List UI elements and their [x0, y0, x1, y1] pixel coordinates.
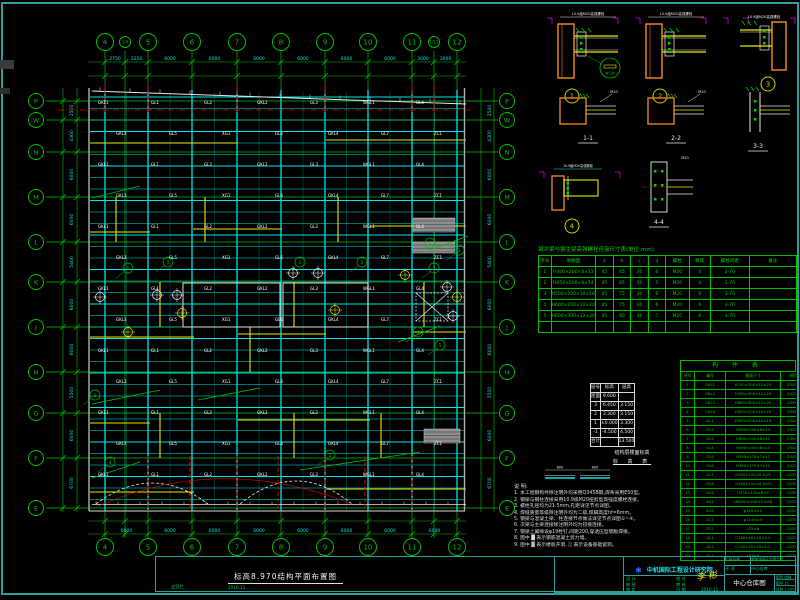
- weld-note: 坡口焊: [605, 70, 614, 75]
- member-table-cell: GKL2: [695, 390, 726, 399]
- signature-grid-cell: 校 对: [676, 576, 686, 581]
- detail-callout-number: 3: [458, 248, 461, 254]
- grid-bubble-label: 10: [364, 39, 373, 47]
- dimension-text: 6000: [209, 56, 221, 62]
- beam-label: WGL1: [363, 472, 375, 477]
- bolt-table-cell: c: [631, 256, 649, 267]
- beam-label: GL2: [204, 472, 212, 477]
- beam-label: GL5: [169, 379, 177, 384]
- bolt-table-cell: 3: [539, 289, 552, 300]
- beam-label: GL5: [169, 255, 177, 260]
- bolt-table-cell: 螺栓间距: [711, 256, 750, 267]
- grid-bubble-label: 5: [146, 39, 150, 47]
- grid-bubble-label: 6: [190, 39, 195, 47]
- beam-label: GKL4: [328, 193, 339, 198]
- grid-bubble-label: 1/4: [122, 40, 129, 45]
- member-table-cell: 10: [681, 462, 695, 471]
- detail-annotation: M20: [698, 90, 705, 94]
- green-diagonal: [300, 452, 420, 470]
- grid-bubble-label: G: [504, 409, 509, 417]
- detail-callout-number: 1: [439, 343, 442, 349]
- bolt: [654, 170, 657, 173]
- beam-label: GKL2: [257, 410, 268, 415]
- bolt: [580, 36, 583, 39]
- dimension-text: 6000: [487, 299, 493, 311]
- grid-bubble-label: 11: [408, 39, 417, 47]
- grid-bubble-label: N: [505, 148, 510, 156]
- bolt: [754, 100, 757, 103]
- dimension-text: 4300: [487, 130, 493, 142]
- member-table-cell: HN200×100×5.5×8: [726, 498, 781, 507]
- bolt: [668, 42, 671, 45]
- elevation-table-cell: -4.500: [601, 429, 619, 438]
- member-table-cell: 5: [681, 417, 695, 426]
- member-table-cell: Q345B: [781, 399, 797, 408]
- beam-label: GL3: [310, 162, 318, 167]
- member-table-cell: 8: [681, 444, 695, 453]
- elevation-table-cell: 3.300: [601, 411, 619, 420]
- beam-label: GKL1: [98, 286, 109, 291]
- grid-bubble-label: 7: [235, 39, 239, 47]
- elevation-table-cell: 13.500: [618, 438, 635, 447]
- detail-number: 3: [766, 81, 770, 89]
- callout-leader: [422, 272, 430, 278]
- bolt: [580, 42, 583, 45]
- grid-bubble-label: N: [34, 148, 39, 156]
- member-table-cell: Q345B: [781, 390, 797, 399]
- bolt: [668, 36, 671, 39]
- bolt-table-cell: 3-70: [711, 311, 750, 322]
- dimension-text: 3000: [440, 56, 452, 62]
- detail-callout-number: 5: [127, 266, 130, 272]
- member-table-cell: φ140×4.0: [726, 507, 781, 516]
- weld-tick: [748, 21, 751, 25]
- dimension-text: 5400: [487, 256, 493, 268]
- weld-tick: [756, 87, 759, 91]
- elevation-table-cell: 1: [591, 420, 601, 429]
- beam-label: GKL2: [257, 224, 268, 229]
- dimension-text: 6000: [69, 214, 75, 226]
- dimension-text: 6000: [341, 528, 353, 534]
- bolt-table-cell: [749, 289, 796, 300]
- dimension-text: 6000: [209, 528, 221, 534]
- detail-callout-number: 1: [429, 241, 432, 247]
- bolt-table-cell: 2-70: [711, 267, 750, 278]
- member-table-cell: XG2: [695, 507, 726, 516]
- beam-label: GL1: [151, 224, 159, 229]
- elevation-table-cell: ±0.000: [601, 420, 619, 429]
- bolt-table-cell: [711, 322, 750, 333]
- weld-tick: [742, 21, 745, 25]
- bolt-table-cell: [648, 322, 665, 333]
- detail-annotation: M20: [681, 156, 688, 160]
- beam-label: GL2: [204, 100, 212, 105]
- bolt-table-cell: [749, 278, 796, 289]
- subitem-value-cell: 中心仓库: [750, 566, 797, 575]
- member-table-cell: GKL1: [695, 381, 726, 390]
- beam-label: WGL1: [363, 348, 375, 353]
- notes-sketch-dim-text: 600: [557, 466, 564, 470]
- weld-plate: [604, 65, 616, 68]
- grid-bubble-label: J: [505, 323, 508, 331]
- dimension-text: 6000: [297, 528, 309, 534]
- beam-label: ZC1: [434, 193, 443, 198]
- beam-label: GKL3: [116, 441, 127, 446]
- column-detail: [558, 24, 574, 78]
- bolt-table: 钢次梁与钢主梁高强螺栓连接尺寸表(单位:mm) 序号梁截面abcd螺栓数量螺栓间…: [538, 245, 797, 333]
- signature-strip-date: 2010.11: [228, 585, 245, 590]
- dimension-text: 6700: [487, 477, 493, 489]
- member-table-cell: Q235B: [781, 534, 797, 543]
- drawing-meta-cells: 图别 结施图号 15比例 1:100: [774, 575, 797, 593]
- beam-label: GKL2: [257, 162, 268, 167]
- member-table-cell: XG1: [695, 498, 726, 507]
- beam-label: ZC1: [434, 317, 443, 322]
- member-table-cell: Q235B: [781, 516, 797, 525]
- subitem-name: 中心仓库: [751, 566, 797, 571]
- bolt-table-cell: [749, 300, 796, 311]
- beam-label: GKL3: [116, 379, 127, 384]
- grid-bubble-label: K: [34, 278, 39, 286]
- member-table-cell: QL1: [695, 534, 726, 543]
- bolt: [567, 182, 570, 185]
- grid-bubble-label: 11: [408, 544, 417, 552]
- dimension-text: 6000: [487, 169, 493, 181]
- signature-grid-cell: 审 核: [676, 582, 686, 587]
- dimension-text: 6700: [69, 477, 75, 489]
- section-column: [560, 98, 586, 124]
- beam-label: GKL3: [116, 255, 127, 260]
- bolt-table-cell: H600×200×10×20: [551, 300, 595, 311]
- grid-bubble-label: 12: [453, 544, 462, 552]
- beam-label: GL2: [204, 348, 212, 353]
- beam-label: GL4: [416, 162, 424, 167]
- column-detail: [772, 22, 786, 70]
- beam-label: GL5: [169, 131, 177, 136]
- beam-label: GKL1: [98, 472, 109, 477]
- drawing-title: 中心仓库图: [725, 575, 774, 592]
- bolt-table-cell: 45: [596, 278, 614, 289]
- bolt-table-cell: M20: [666, 300, 689, 311]
- member-table-cell: H250×125×6×9: [726, 489, 781, 498]
- bolt-table-cell: M20: [666, 289, 689, 300]
- bolt-table-cell: 6: [689, 311, 711, 322]
- beam-label: GL7: [381, 317, 389, 322]
- beam-label: GKL1: [98, 162, 109, 167]
- beam-label: WGL1: [363, 224, 375, 229]
- beam-label: GKL1: [98, 100, 109, 105]
- bolt-table-cell: 7: [648, 311, 665, 322]
- grid-bubble-label: 7: [235, 544, 239, 552]
- member-table-cell: C160×60×20×2.5: [726, 534, 781, 543]
- bolt-table-cell: 序号: [539, 256, 552, 267]
- title-block-blank-cell: [554, 557, 623, 593]
- member-table-cell: H700×300×12×22: [726, 381, 781, 390]
- bolt: [668, 48, 671, 51]
- dimension-text: 6000: [69, 169, 75, 181]
- member-table-cell: GL2: [695, 426, 726, 435]
- company-logo-icon: ✱: [635, 567, 642, 575]
- elevation-table-cell: 2: [591, 411, 601, 420]
- elevation-table-cell: 3.150: [618, 411, 635, 420]
- beam-label: WGL1: [363, 100, 375, 105]
- beam-label: GL6: [275, 255, 283, 260]
- member-table-cell: 截面尺寸: [726, 372, 781, 381]
- signature-grid-cell: 设 计: [626, 576, 636, 581]
- dimension-text: 5500: [487, 387, 493, 399]
- bolt-table-cell: 45: [596, 267, 614, 278]
- arch-brace: [240, 481, 352, 504]
- bolt: [754, 118, 757, 121]
- beam-label: GL5: [169, 317, 177, 322]
- green-diagonal: [198, 388, 260, 400]
- elevation-table-cell: 3.300: [618, 420, 635, 429]
- weld-tick: [676, 28, 679, 32]
- grid-bubble-label: 5: [146, 544, 150, 552]
- elevation-table-cell: 层高: [618, 384, 635, 393]
- elevation-table-cell: [601, 438, 619, 447]
- bolt: [661, 184, 664, 187]
- grid-bubble-label: 9: [323, 544, 327, 552]
- bolt-table-cell: 30: [631, 300, 649, 311]
- detail-callout-number: 1: [299, 260, 302, 266]
- elevation-table-caption: 结构层楼面标高: [590, 449, 674, 456]
- beam-label: ZC1: [434, 441, 443, 446]
- grid-bubble-label: H: [505, 368, 510, 376]
- member-table-cell: H500×200×10×16: [726, 417, 781, 426]
- beam-label: GL3: [310, 348, 318, 353]
- detail-callout-number: 1: [167, 260, 170, 266]
- member-table-cell: 3: [681, 399, 695, 408]
- bolt: [763, 42, 766, 45]
- member-table-cell: GL4: [695, 444, 726, 453]
- bolt-table-cell: 数量: [689, 256, 711, 267]
- bolt-table-cell: 螺栓: [666, 256, 689, 267]
- member-table-cell: GL1: [695, 417, 726, 426]
- grid-bubble-label: L: [34, 238, 38, 246]
- member-table-cell: 2: [681, 390, 695, 399]
- beam-label: GKL2: [257, 286, 268, 291]
- dimension-text: 6000: [487, 344, 493, 356]
- dimension-text: 6000: [297, 56, 309, 62]
- project-value-cell: 某物流园区仓储工程: [750, 557, 797, 566]
- elevation-table-cell: 标高: [601, 384, 619, 393]
- elevation-table-cell: 3.150: [618, 402, 635, 411]
- member-table-cell: GL3: [695, 435, 726, 444]
- elevation-table-cell: 6.450: [601, 402, 619, 411]
- beam-label: GL3: [310, 410, 318, 415]
- beam-label: XG1: [222, 317, 231, 322]
- bolt-table-cell: 45: [613, 267, 631, 278]
- detail-callout-number: 2: [433, 266, 436, 272]
- stair-hatch: [413, 242, 455, 253]
- beam-label: GKL1: [98, 348, 109, 353]
- bolt: [567, 187, 570, 190]
- bolt-table-cell: 6: [648, 300, 665, 311]
- bolt-table-cell: 75: [613, 289, 631, 300]
- weld-tick: [670, 28, 673, 32]
- weld-tick: [664, 28, 667, 32]
- beam-label: GL1: [151, 410, 159, 415]
- bolt-table-cell: H600×300×12×20: [551, 311, 595, 322]
- weld-leader: [588, 56, 602, 64]
- beam-label: GKL3: [116, 131, 127, 136]
- member-table-cell: GL8: [695, 480, 726, 489]
- detail-callout-number: 4: [417, 330, 420, 336]
- detail-annotation: 10.9级M20高强螺栓: [660, 11, 693, 16]
- dimension-text: 6000: [69, 344, 75, 356]
- member-table-cell: GL5: [695, 453, 726, 462]
- detail-number: 4: [570, 223, 575, 231]
- callout-leader: [116, 272, 124, 278]
- beam-label: GL3: [310, 472, 318, 477]
- grid-bubble-label: W: [33, 116, 40, 124]
- beam-label: GL2: [204, 410, 212, 415]
- title-block: 会签栏 2010.11 ✱ 中机国际工程设计研究院 设 计校 对制 图审 核审 …: [155, 556, 796, 592]
- dimension-text: 3000: [417, 56, 429, 62]
- cad-application-window[interactable]: 441/45566778899101011111/111212PPWWNNMML…: [0, 0, 800, 600]
- beam-label: GL3: [310, 100, 318, 105]
- beam-label: XG1: [222, 379, 231, 384]
- dimension-text: 6000: [341, 56, 353, 62]
- member-table-cell: H600×200×10×20: [726, 408, 781, 417]
- beam-label: GL4: [416, 224, 424, 229]
- grid-bubble-label: 8: [279, 39, 283, 47]
- member-table-cell: H300×150×6.5×9: [726, 471, 781, 480]
- member-table-cell: Q235B: [781, 525, 797, 534]
- dimension-text: 2500: [487, 105, 493, 117]
- elevation-table-cell: 屋面: [591, 393, 601, 402]
- detail-number: 1: [570, 93, 574, 101]
- member-table-cell: 1: [681, 381, 695, 390]
- dimension-text: 6000: [69, 299, 75, 311]
- member-table-cell: GKL3: [695, 399, 726, 408]
- member-table-cell: H350×175×7×11: [726, 453, 781, 462]
- bolt-table-cell: 2-70: [711, 278, 750, 289]
- bolt-table-cell: 5: [648, 278, 665, 289]
- beam-label: GKL1: [98, 410, 109, 415]
- member-table-cell: 9: [681, 453, 695, 462]
- elevation-table-cell: [618, 393, 635, 402]
- beam-label: GKL2: [257, 348, 268, 353]
- member-table-cell: H400×200×8×13: [726, 435, 781, 444]
- bolt-table-cell: 4: [689, 278, 711, 289]
- weld-tick: [582, 28, 585, 32]
- beam-label: XG1: [222, 255, 231, 260]
- beam-label: GL6: [275, 317, 283, 322]
- member-table-cell: Q345B: [781, 435, 797, 444]
- elevation-table-cell: 3: [591, 402, 601, 411]
- bolt-table-cell: 45: [596, 311, 614, 322]
- bolt-table-cell: M20: [666, 311, 689, 322]
- beam-label: WGL1: [363, 162, 375, 167]
- bolt-table-cell: 2: [539, 278, 552, 289]
- bolt-table-cell: 45: [596, 289, 614, 300]
- grid-bubble-label: P: [505, 97, 509, 105]
- beam-label: GL7: [381, 131, 389, 136]
- member-table-cell: GL7: [695, 471, 726, 480]
- bolt-table-cell: 75: [613, 300, 631, 311]
- grid-bubble-label: F: [505, 454, 509, 462]
- member-table-cell: Q345B: [781, 444, 797, 453]
- detail-annotation: 10.9级M20高强螺栓: [563, 163, 594, 168]
- beam-label: GKL4: [328, 317, 339, 322]
- dimension-text: 6000: [429, 528, 441, 534]
- dimension-text: 5500: [69, 387, 75, 399]
- bolt-table-cell: 5: [539, 311, 552, 322]
- grid-bubble-label: J: [34, 323, 37, 331]
- member-table-cell: H350×175×7×11: [726, 462, 781, 471]
- bolt: [654, 184, 657, 187]
- bolt-table-cell: [631, 322, 649, 333]
- grid-bubble-label: 9: [323, 39, 327, 47]
- dimension-text: 6000: [164, 528, 176, 534]
- bolt-table-cell: H450×200×8×14: [551, 278, 595, 289]
- dimension-text: 2750: [109, 56, 121, 62]
- elevation-table-cell: 合计: [591, 438, 601, 447]
- grid-bubble-label: 4: [103, 39, 108, 47]
- project-label-cell: 工程名称: [724, 557, 750, 566]
- section-label: 3-3: [753, 143, 763, 150]
- member-table-cell: Q235B: [781, 543, 797, 552]
- beam-label: GKL3: [116, 317, 127, 322]
- beam-label: GKL2: [257, 472, 268, 477]
- weld-tick: [754, 21, 757, 25]
- member-table-cell: Q345B: [781, 453, 797, 462]
- member-table-cell: Q235B: [781, 498, 797, 507]
- section-label: 2-2: [671, 135, 681, 142]
- bolt-table-cell: [551, 322, 595, 333]
- bolt-table-cell: M20: [666, 267, 689, 278]
- member-table-cell: H300×150×6.5×9: [726, 480, 781, 489]
- beam-label: GL4: [416, 286, 424, 291]
- dimension-text: 5400: [69, 256, 75, 268]
- member-table-title: 构 件 表: [680, 360, 796, 371]
- beam-label: WGL1: [363, 410, 375, 415]
- beam-label: GKL1: [98, 224, 109, 229]
- bolt-table-cell: 梁截面: [551, 256, 595, 267]
- dimension-text: 6000: [121, 528, 133, 534]
- weld-tick: [751, 87, 754, 91]
- weld-tick: [588, 28, 591, 32]
- dim-leader: [600, 94, 612, 102]
- elevation-table-cell: 9.600: [601, 393, 619, 402]
- detail-annotation: 10.9级M20高强螺栓: [748, 14, 781, 19]
- beam-label: GL4: [416, 100, 424, 105]
- elevation-table-cell: 4.500: [618, 429, 635, 438]
- bolt-table-cell: 3-70: [711, 300, 750, 311]
- bolt: [580, 48, 583, 51]
- member-table-cell: GL9: [695, 489, 726, 498]
- bolt-table-cell: [666, 322, 689, 333]
- bolt-table-cell: M20: [666, 278, 689, 289]
- grid-bubble-label: 12: [453, 39, 462, 47]
- grid-bubble-label: E: [505, 504, 509, 512]
- drawing-meta-cell: 图别 结施: [776, 575, 795, 580]
- grid-bubble-label: G: [33, 409, 38, 417]
- bolt-table-cell: 6: [648, 289, 665, 300]
- signature-grid-cell: 日 期: [676, 587, 686, 592]
- notes-heading: 说 明:: [514, 484, 684, 490]
- beam-label: GL4: [416, 472, 424, 477]
- beam-label: GL1: [151, 100, 159, 105]
- weld-tick: [746, 87, 749, 91]
- bolt-table-cell: [749, 311, 796, 322]
- bolt-table-cell: 4: [689, 267, 711, 278]
- notes-block: 说 明: 1. 本工程钢构件除注明外均采用Q345B钢,焊条采用E50型。2. …: [514, 484, 684, 549]
- detail-callout-number: 2: [361, 260, 364, 266]
- elevation-table-cell: -1: [591, 429, 601, 438]
